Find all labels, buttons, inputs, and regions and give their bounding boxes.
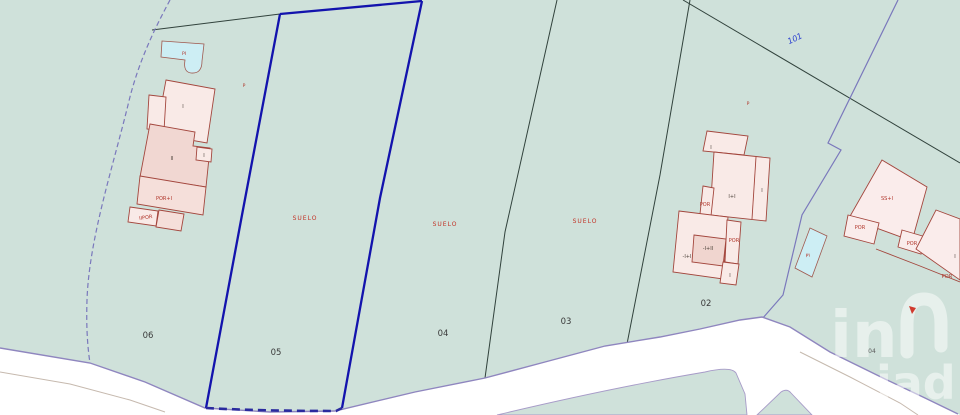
center-right-i-label: I bbox=[761, 188, 762, 194]
left-annex-i-label: I bbox=[203, 153, 204, 159]
center-bottom-i-label: I bbox=[729, 273, 730, 279]
building-center-main bbox=[710, 152, 770, 221]
left-floor-ii-label: II bbox=[171, 156, 174, 162]
right-por-c-label: POR bbox=[942, 274, 953, 280]
center-por-right-label: POR bbox=[729, 238, 740, 244]
parcel-number-03: 03 bbox=[561, 317, 572, 327]
suelo-label-1: SUELO bbox=[293, 215, 318, 222]
cadastral-map: 06 05 04 03 02 SUELO SUELO SUELO I II I … bbox=[0, 0, 960, 415]
parcel-number-05: 05 bbox=[271, 348, 282, 358]
center-i-plus-i-label: I+I bbox=[728, 194, 735, 200]
right-por-b-label: POR bbox=[907, 241, 918, 247]
parcel-number-04: 04 bbox=[438, 329, 449, 339]
pool-right-label: PI bbox=[805, 253, 810, 260]
building-center-strip-left bbox=[700, 186, 714, 216]
watermark-text-iad: iad bbox=[876, 356, 956, 410]
suelo-label-3: SUELO bbox=[573, 218, 598, 225]
map-canvas: 06 05 04 03 02 SUELO SUELO SUELO I II I … bbox=[0, 0, 960, 415]
parcel-number-02: 02 bbox=[701, 299, 712, 309]
left-floor-i-label: I bbox=[182, 104, 183, 110]
right-ss-i-label: SS+I bbox=[881, 196, 893, 202]
suelo-label-2: SUELO bbox=[433, 221, 458, 228]
left-por-i-label: POR+I bbox=[156, 196, 172, 202]
pool-left-label: PI bbox=[182, 51, 186, 57]
parcel-number-06: 06 bbox=[143, 331, 154, 341]
right-part-i-label: I bbox=[954, 254, 955, 260]
center-por-left-label: POR bbox=[700, 202, 711, 208]
right-por-a-label: POR bbox=[855, 225, 866, 231]
center-minus-i-ii-label: -I+II bbox=[703, 246, 713, 252]
center-top-i-label: I bbox=[710, 145, 711, 151]
p-marker-right: P bbox=[747, 101, 750, 107]
building-left-step bbox=[156, 210, 184, 231]
center-minus-i-i-label: -I+I bbox=[683, 254, 692, 260]
p-marker-left: P bbox=[243, 83, 246, 89]
